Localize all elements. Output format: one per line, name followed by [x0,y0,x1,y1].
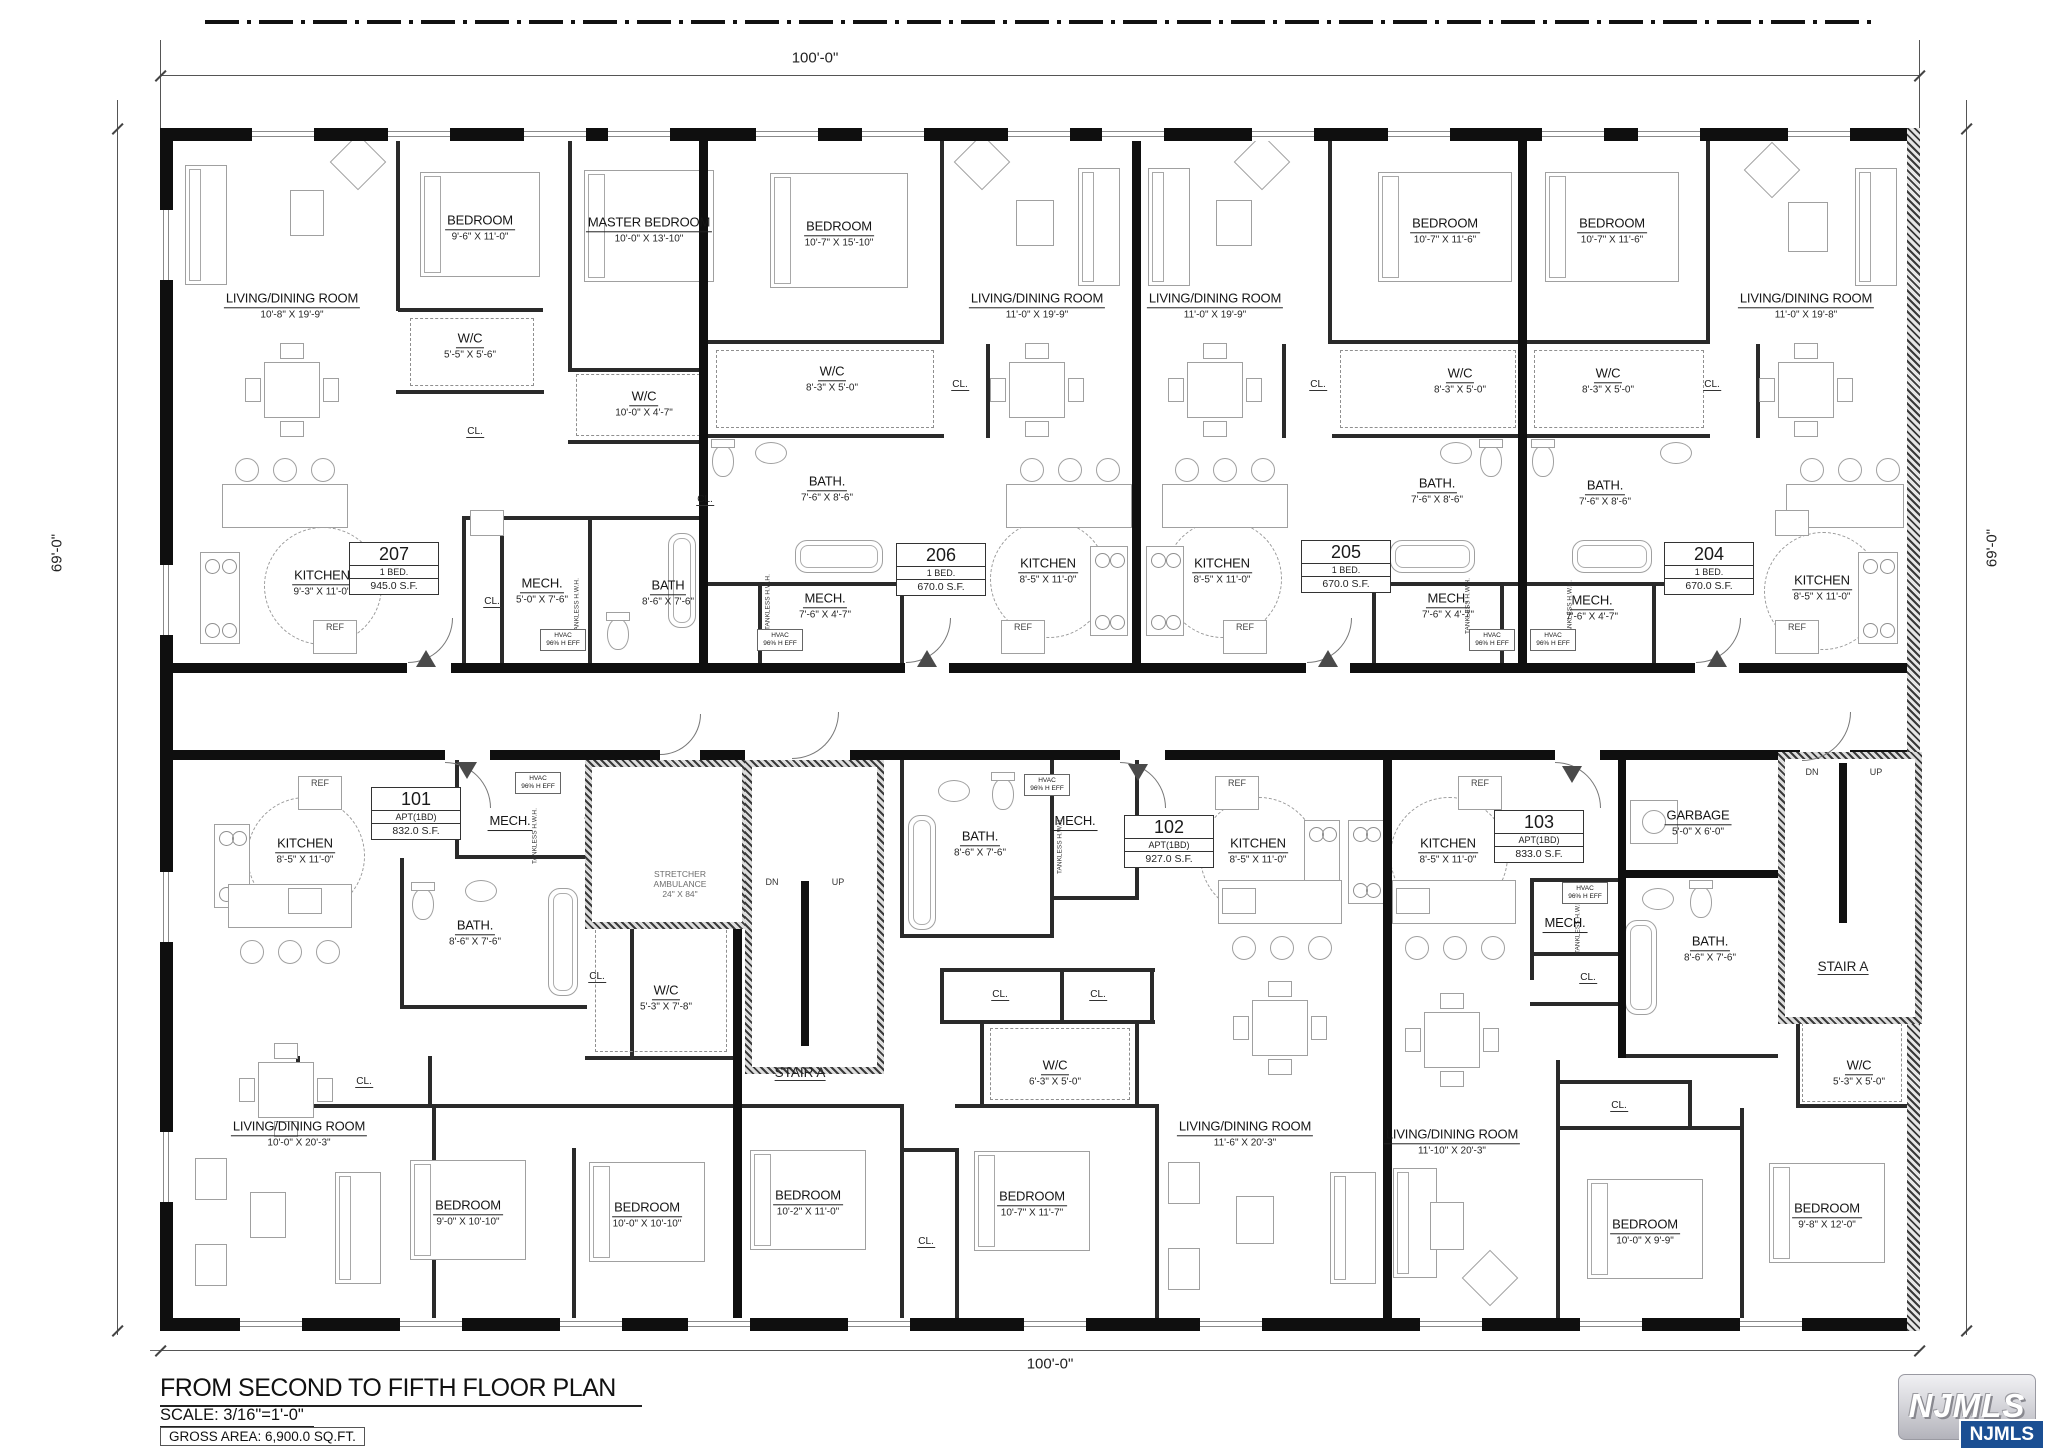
partition [1560,1080,1692,1084]
room-dimensions: 11'-10" X 20'-3" [1384,1145,1520,1157]
kitchen-sink [1775,510,1809,536]
dining-table [1424,1012,1480,1068]
partition [940,141,944,344]
stair-a-right-shaft [1778,752,1922,1024]
room-label-bed205: BEDROOM10'-7" X 11'-6" [1410,214,1480,245]
partition [400,858,404,1008]
stair-rail [800,880,810,1047]
partition [1556,1060,1560,1318]
stool [1876,458,1900,482]
unit-number: 207 [350,543,438,566]
hvac-label: HVAC [1470,632,1514,640]
partition [398,308,543,312]
wall [850,750,1120,760]
plan-title: FROM SECOND TO FIFTH FLOOR PLAN [160,1374,642,1407]
ref-label: REF [314,622,356,632]
room-name: LIVING/DINING ROOM [224,291,360,308]
kitchen-sink [288,888,322,914]
hvac-eff-label: 96% H EFF [1470,640,1514,648]
partition [707,340,944,344]
unit-number: 102 [1125,816,1213,839]
partition [1526,434,1710,438]
wall [172,663,407,673]
chair [1025,343,1049,359]
room-dimensions: 8'-3" X 5'-0" [1434,384,1486,396]
wall [451,663,905,673]
room-name: BEDROOM [612,1200,682,1217]
wall [1165,750,1555,760]
sofa [1078,168,1120,286]
property-line [205,20,1871,24]
room-name: KITCHEN [275,836,335,853]
room-dimensions: 8'-5" X 11'-0" [1192,574,1252,586]
burner-icon [1366,883,1381,898]
partition [462,516,466,663]
ref-label: REF [1459,778,1501,788]
window [1102,128,1164,141]
kitchen-island [222,484,348,528]
room-label-bath102: BATH.8'-6" X 7'-6" [954,827,1006,858]
partition [1050,896,1135,900]
room-label-wc103: W/C5'-3" X 5'-0" [1833,1056,1885,1087]
room-dimensions: 7'-6" X 8'-6" [801,492,853,504]
room-name: LIVING/DINING ROOM [1147,291,1283,308]
room-dimensions: 10'-0" X 20'-3" [231,1137,367,1149]
unit-tag-103: 103 APT(1BD) 833.0 S.F. [1494,810,1584,863]
partition [568,141,572,371]
room-label-kitchen204: KITCHEN8'-5" X 11'-0" [1792,571,1852,602]
burner-icon [1366,827,1381,842]
bathroom-sink [1660,442,1692,464]
coffee-table [1236,1196,1274,1244]
armchair [1462,1250,1519,1307]
elevator-label: STRETCHERAMBULANCE24" X 84" [654,869,707,899]
kitchen-sink [1396,888,1430,914]
partition [500,516,504,663]
room-dimensions: 11'-0" X 19'-9" [1147,309,1283,321]
window [1252,128,1314,141]
room-name: KITCHEN [1792,573,1852,590]
room-label-bath204: BATH.7'-6" X 8'-6" [1579,476,1631,507]
window [1388,128,1450,141]
chair [245,378,261,402]
room-name: BATH. [807,474,847,491]
sofa [1148,168,1190,286]
chair [1759,378,1775,402]
partition [400,1005,587,1009]
room-label-bed102b: BEDROOM10'-7" X 11'-7" [997,1187,1067,1218]
room-dimensions: 10'-7" X 15'-10" [804,237,874,249]
hvac-unit: HVAC96% H EFF [1530,629,1576,651]
room-dimensions: 8'-5" X 11'-0" [1792,591,1852,603]
room-name: GARBAGE [1665,808,1732,825]
room-name: MECH. [1570,593,1615,610]
partition [1530,1002,1618,1006]
room-name: BATH. [1417,476,1457,493]
stool [1232,936,1256,960]
room-label-living204: LIVING/DINING ROOM11'-0" X 19'-8" [1738,289,1874,320]
window [1542,128,1604,141]
refrigerator: REF [298,776,342,810]
elevator-label-line: STRETCHER [654,869,707,879]
partition [432,1104,733,1108]
wall [490,750,585,760]
room-dimensions: 8'-5" X 11'-0" [1228,854,1288,866]
partition [296,1104,432,1108]
wall [949,663,1306,673]
room-label-living207: LIVING/DINING ROOM10'-8" X 19'-9" [224,289,360,320]
dining-table [1187,362,1243,418]
bathroom-sink [1440,442,1472,464]
njmls-logo: NJMLS NJMLS [1898,1374,2036,1440]
room-dimensions: 10'-0" X 9'-9" [1610,1235,1680,1247]
unit-type: 1 BED. [897,567,985,580]
partition [568,440,703,444]
refrigerator: REF [1215,776,1259,810]
partition [1332,340,1522,344]
partition [588,516,592,663]
room-label-bed207: BEDROOM9'-6" X 11'-0" [445,211,515,242]
unit-type: 1 BED. [1665,566,1753,579]
chair [1483,1028,1499,1052]
partition [940,968,1155,972]
room-dimensions: 7'-6" X 8'-6" [1411,494,1463,506]
stool [1838,458,1862,482]
room-name: MECH. [803,591,848,608]
stool [1213,458,1237,482]
hvac-unit: HVAC96% H EFF [1024,774,1070,796]
room-label-living102: LIVING/DINING ROOM11'-6" X 20'-3" [1177,1117,1313,1148]
dining-table [1778,362,1834,418]
dimension-line-bottom [160,1350,1920,1351]
room-name: BEDROOM [1410,216,1480,233]
partition [396,141,400,311]
stool [1020,458,1044,482]
toilet [607,618,629,650]
dining-table [264,362,320,418]
sofa [185,165,227,285]
toilet [412,888,434,920]
hvac-label: HVAC [1531,632,1575,640]
stair-up-label: UP [1870,767,1883,777]
window [160,1132,173,1202]
armchair [195,1158,227,1200]
room-name: BATH. [1690,934,1730,951]
party-wall [1907,128,1920,1331]
bathroom-sink [1642,888,1674,910]
room-label-bath103: BATH.8'-6" X 7'-6" [1684,932,1736,963]
partition [980,1020,984,1108]
room-dimensions: 9'-0" X 10'-10" [433,1216,503,1228]
room-name: BEDROOM [1577,216,1647,233]
room-name: W/C [652,983,681,1000]
window [1788,128,1850,141]
room-label-kitchen102: KITCHEN8'-5" X 11'-0" [1228,834,1288,865]
unit-number: 206 [897,544,985,567]
stair-a-label: STAIR A [1818,959,1869,975]
chair [1794,421,1818,437]
armchair [1234,134,1291,191]
refrigerator: REF [1775,620,1819,654]
closet-label: CL. [466,426,484,438]
room-name: W/C [818,364,847,381]
room-name: W/C [1594,366,1623,383]
room-dimensions: 10'-7" X 11'-6" [1410,234,1480,246]
wall [1383,760,1392,1318]
room-label-bath207: BATH8'-6" X 7'-6" [642,576,694,607]
armchair [1744,142,1801,199]
dimension-line-left [117,100,118,1335]
closet-label: CL. [917,1236,935,1248]
door-swing [660,714,701,755]
dimension-left: 69'-0" [49,527,66,579]
closet-label: CL. [1610,1100,1628,1112]
stair-a-left-shaft [745,760,884,1074]
entry-arrow-icon [1318,650,1338,667]
room-dimensions: 5'-0" X 6'-0" [1665,826,1732,838]
room-name: LIVING/DINING ROOM [969,291,1105,308]
room-dimensions: 10'-0" X 10'-10" [612,1218,682,1230]
burner-icon [222,559,237,574]
chair [1440,1071,1464,1087]
unit-number: 101 [372,788,460,811]
room-label-living206: LIVING/DINING ROOM11'-0" X 19'-9" [969,289,1105,320]
toilet [1690,886,1712,918]
unit-area: 670.0 S.F. [1302,577,1390,592]
toilet [1480,445,1502,477]
stool [1058,458,1082,482]
entry-arrow-icon [917,650,937,667]
hvac-eff-label: 96% H EFF [1025,785,1069,793]
coffee-table [1216,200,1252,246]
room-dimensions: 8'-6" X 7'-6" [954,847,1006,859]
elevator-label-line: 24" X 84" [654,889,707,899]
unit-type: APT(1BD) [1125,839,1213,852]
room-label-kitchen101: KITCHEN8'-5" X 11'-0" [275,834,335,865]
dining-table [258,1062,314,1118]
bathtub [1390,540,1475,573]
room-label-mech204: MECH.7'-6" X 4'-7" [1566,591,1618,622]
dimension-line-top [160,75,1920,76]
room-label-wc205: W/C8'-3" X 5'-0" [1434,364,1486,395]
room-name: W/C [1446,366,1475,383]
door-swing [792,712,839,759]
room-label-wc207a: W/C5'-5" X 5'-6" [444,329,496,360]
burner-icon [222,623,237,638]
stove-icon [1858,552,1898,644]
window [240,1318,302,1331]
room-dimensions: 11'-6" X 20'-3" [1177,1137,1313,1149]
room-name: LIVING/DINING ROOM [1384,1127,1520,1144]
window [688,1318,750,1331]
coffee-table [1788,202,1828,252]
stove-icon [1090,546,1128,636]
sofa [1855,168,1897,286]
burner-icon [1166,553,1181,568]
window [862,128,924,141]
wall [1132,141,1141,663]
room-name: BEDROOM [433,1198,503,1215]
unit-tag-102: 102 APT(1BD) 927.0 S.F. [1124,815,1214,868]
room-dimensions: 8'-6" X 7'-6" [449,936,501,948]
partition [1618,1054,1778,1058]
room-label-bed204: BEDROOM10'-7" X 11'-6" [1577,214,1647,245]
room-label-bed101a: BEDROOM9'-0" X 10'-10" [433,1196,503,1227]
stool [1405,936,1429,960]
extension-line [160,40,161,128]
burner-icon [1095,553,1110,568]
stool [1096,458,1120,482]
partition [1135,1020,1139,1108]
stool [1481,936,1505,960]
njmls-badge: NJMLS [1959,1419,2043,1448]
room-label-mech103: MECH. [1543,914,1588,934]
room-label-living103: LIVING/DINING ROOM11'-10" X 20'-3" [1384,1125,1520,1156]
chair [1025,421,1049,437]
coffee-table [1430,1202,1464,1250]
hvac-unit: HVAC96% H EFF [757,629,803,651]
partition [1282,344,1286,438]
room-label-garbage: GARBAGE5'-0" X 6'-0" [1665,806,1732,837]
window [160,210,173,280]
window [524,128,586,141]
partition [572,1148,576,1318]
room-dimensions: 10'-0" X 4'-7" [615,407,673,419]
room-name: BEDROOM [1792,1201,1862,1218]
chair [1068,378,1084,402]
window [160,565,173,635]
unit-type: APT(1BD) [1495,834,1583,847]
room-dimensions: 10'-7" X 11'-7" [997,1207,1067,1219]
stool [235,458,259,482]
room-label-kitchen205: KITCHEN8'-5" X 11'-0" [1192,554,1252,585]
hvac-eff-label: 96% H EFF [1531,640,1575,648]
unit-number: 205 [1302,541,1390,564]
partition [900,1148,955,1152]
room-dimensions: 7'-6" X 4'-7" [1566,611,1618,623]
burner-icon [1863,623,1878,638]
room-name: KITCHEN [1192,556,1252,573]
room-dimensions: 9'-6" X 11'-0" [445,231,515,243]
unit-tag-204: 204 1 BED. 670.0 S.F. [1664,542,1754,595]
bathroom-sink [755,442,787,464]
burner-icon [1095,615,1110,630]
stool [1800,458,1824,482]
toilet [712,445,734,477]
window [1200,1318,1262,1331]
chair [990,378,1006,402]
stool [1270,936,1294,960]
armchair [1168,1162,1200,1204]
burner-icon [1880,623,1895,638]
room-dimensions: 5'-5" X 5'-6" [444,349,496,361]
wall [585,750,660,760]
hvac-label: HVAC [1025,777,1069,785]
stair-up-label: UP [832,877,845,887]
partition [900,934,1050,938]
stool [1175,458,1199,482]
dimension-line-right [1966,100,1967,1335]
stair-dn-label: DN [1806,767,1819,777]
room-label-wc204: W/C8'-3" X 5'-0" [1582,364,1634,395]
room-name: LIVING/DINING ROOM [1177,1119,1313,1136]
room-label-bed102a: BEDROOM10'-2" X 11'-0" [773,1186,843,1217]
closet-label: CL. [1579,972,1597,984]
bathroom-sink [465,880,497,902]
kitchen-island [1006,484,1132,528]
room-label-mech207: MECH.5'-0" X 7'-6" [516,574,568,605]
hvac-unit: HVAC96% H EFF [540,629,586,651]
room-label-kitchen103: KITCHEN8'-5" X 11'-0" [1418,834,1478,865]
room-dimensions: 8'-5" X 11'-0" [275,854,335,866]
chair [1311,1016,1327,1040]
ref-label: REF [1224,622,1266,632]
room-dimensions: 8'-3" X 5'-0" [1582,384,1634,396]
room-name: MECH. [520,576,565,593]
room-dimensions: 6'-3" X 5'-0" [1029,1076,1081,1088]
closet-label: CL. [1703,379,1721,391]
tankless-label: TANKLESS H.W.H. [532,808,539,864]
chair [1168,378,1184,402]
partition [428,1056,432,1108]
window [400,1318,462,1331]
unit-tag-206: 206 1 BED. 670.0 S.F. [896,543,986,596]
burner-icon [232,831,247,846]
burner-icon [1110,553,1125,568]
unit-area: 927.0 S.F. [1125,852,1213,867]
room-label-bed103b: BEDROOM9'-8" X 12'-0" [1792,1199,1862,1230]
room-name: LIVING/DINING ROOM [1738,291,1874,308]
bathtub [548,888,578,996]
bathtub [908,815,936,930]
room-name: KITCHEN [1418,836,1478,853]
partition [1740,1108,1744,1318]
dimension-top: 100'-0" [785,50,846,67]
extension-line [1919,40,1920,128]
room-dimensions: 5'-3" X 5'-0" [1833,1076,1885,1088]
burner-icon [205,623,220,638]
plan-gross-area: GROSS AREA: 6,900.0 SQ.FT. [160,1427,365,1446]
coffee-table [250,1192,286,1238]
wall [700,750,745,760]
bathtub [795,540,883,573]
room-dimensions: 8'-5" X 11'-0" [1018,574,1078,586]
stair-dn-label: DN [766,877,779,887]
stove-icon [200,552,240,644]
partition [940,1020,1155,1024]
coffee-table [290,190,324,236]
room-dimensions: 5'-3" X 7'-8" [640,1001,692,1013]
refrigerator: REF [1223,620,1267,654]
stove-icon [1348,820,1384,904]
floor-plan-canvas: REFREFREFREFREFREFREFLIVING/DINING ROOM1… [0,0,2048,1448]
room-name: KITCHEN [1018,556,1078,573]
partition [1328,141,1332,344]
room-name: W/C [630,389,659,406]
window [1740,1318,1802,1331]
room-label-mech206: MECH.7'-6" X 4'-7" [799,589,851,620]
partition [1556,1126,1744,1130]
burner-icon [1110,615,1125,630]
room-name: BEDROOM [445,213,515,230]
entry-arrow-icon [1707,650,1727,667]
window [252,128,314,141]
chair [274,1043,298,1059]
partition [396,390,544,394]
dining-table [1009,362,1065,418]
unit-tag-205: 205 1 BED. 670.0 S.F. [1301,540,1391,593]
stool [1308,936,1332,960]
